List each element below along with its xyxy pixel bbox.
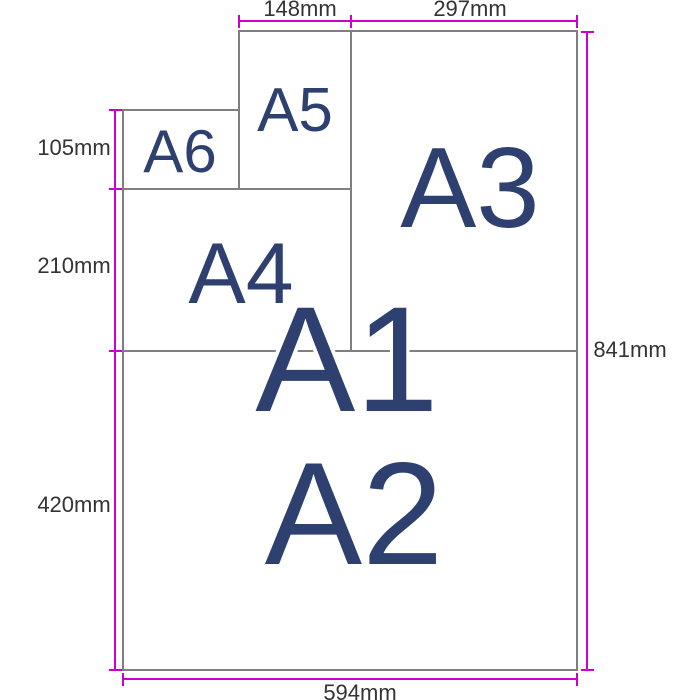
dimension-tick: [576, 15, 578, 28]
dimension-tick: [350, 15, 352, 28]
dimension-tick: [109, 350, 122, 352]
a2-paper-label: A2: [265, 441, 444, 587]
dimension-tick: [109, 188, 122, 190]
a3-width-label: 297mm: [433, 0, 506, 20]
dimension-tick: [122, 673, 124, 686]
a4-paper-label: A4: [188, 231, 293, 317]
dimension-tick: [238, 15, 240, 28]
a6-height-label: 105mm: [37, 137, 110, 159]
a3-paper-label: A3: [400, 132, 539, 246]
a1-height-label: 841mm: [593, 339, 666, 361]
right-dimension-line: [586, 31, 588, 671]
a1-width-label: 594mm: [323, 682, 396, 700]
a5-width-label: 148mm: [263, 0, 336, 20]
a5-paper-label: A5: [257, 80, 333, 142]
a4-height-label: 210mm: [37, 255, 110, 277]
a6-paper-label: A6: [143, 122, 216, 182]
dimension-tick: [109, 109, 122, 111]
dimension-tick: [109, 669, 122, 671]
paper-sizes-diagram: 148mm 297mm 105mm 210mm 420mm 841mm 594m…: [0, 0, 700, 700]
dimension-tick: [581, 31, 594, 33]
dimension-tick: [576, 673, 578, 686]
left-dimension-line: [114, 109, 116, 671]
a2-height-label: 420mm: [37, 494, 110, 516]
dimension-tick: [581, 669, 594, 671]
